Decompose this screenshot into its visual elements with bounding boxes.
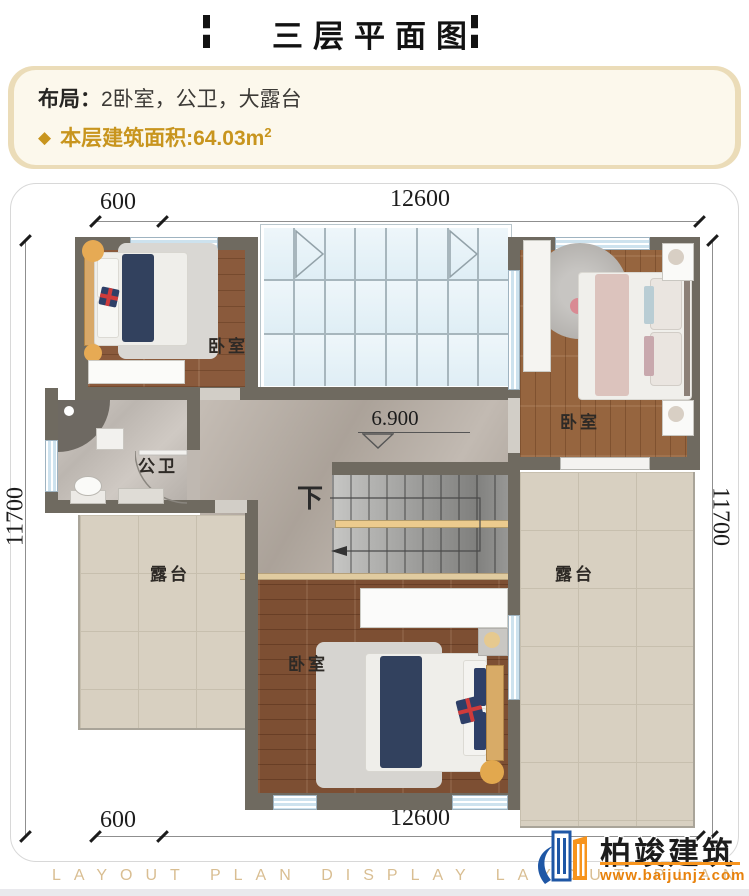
level-triangle: [362, 433, 394, 450]
wardrobe: [523, 240, 551, 372]
bed-blanket: [380, 656, 422, 768]
door-opening: [195, 388, 240, 400]
terrace-left-floor: [78, 515, 245, 730]
wardrobe: [360, 588, 508, 628]
level-label: 6.900: [355, 406, 435, 431]
bath-vanity: [118, 488, 164, 504]
lamp: [484, 632, 500, 648]
stairs-down-label: 下: [292, 478, 328, 515]
area-label: 本层建筑面积:: [60, 127, 193, 150]
title-dash-right: [471, 15, 478, 48]
lamp: [668, 406, 684, 422]
bedroom-topleft-label: 卧室: [198, 332, 258, 357]
window: [508, 615, 520, 700]
round-stool: [480, 760, 504, 784]
skylight-opening-arrows: [263, 228, 509, 282]
bed-blanket: [122, 254, 154, 342]
window: [452, 795, 508, 810]
bed-headboard: [486, 665, 504, 761]
lamp: [668, 249, 684, 265]
bathroom-sink: [96, 428, 124, 450]
pillow: [650, 332, 682, 386]
terrace-opening: [215, 500, 247, 513]
terrace-right-label: 露台: [545, 560, 605, 585]
page-title: 三层平面图: [0, 11, 749, 56]
sliding-door: [560, 457, 650, 470]
dim-left: 11700: [3, 467, 30, 567]
bedroom-topright-label: 卧室: [550, 408, 610, 433]
round-stool: [82, 240, 104, 262]
area-sup: 2: [264, 125, 271, 140]
area-line: ◆本层建筑面积:64.03m2: [38, 122, 272, 152]
bathroom-window: [45, 440, 58, 492]
bathroom-label: 公卫: [128, 452, 188, 477]
wall: [75, 387, 512, 400]
shower-head: [64, 406, 74, 416]
window: [273, 795, 317, 810]
door-opening: [508, 398, 520, 453]
stairs-direction-path: [330, 490, 485, 558]
page: 三层平面图 布局：2卧室，公卫，大露台 ◆本层建筑面积:64.03m2 600 …: [0, 0, 749, 896]
stair-base-beam: [240, 573, 512, 580]
toilet-bowl: [74, 476, 102, 496]
dim-top-left: 600: [88, 189, 148, 216]
pillow: [650, 278, 682, 330]
dim-line-top: [95, 221, 700, 222]
bed-blanket-pink: [595, 274, 629, 396]
info-card: 布局：2卧室，公卫，大露台 ◆本层建筑面积:64.03m2: [8, 66, 741, 169]
dim-bottom-left: 600: [88, 807, 148, 834]
layout-label: 布局：: [38, 88, 101, 111]
wall: [245, 513, 258, 810]
brand-rule: [600, 862, 740, 865]
terrace-right-floor: [520, 472, 695, 828]
wall: [332, 462, 512, 475]
dresser: [88, 360, 185, 384]
union-jack-pillow: [98, 286, 119, 307]
dim-top-center: 12600: [320, 186, 520, 213]
bathroom-door-opening: [187, 450, 200, 505]
bedroom-bottom-label: 卧室: [278, 650, 338, 675]
layout-value: 2卧室，公卫，大露台: [101, 88, 302, 111]
diamond-icon: ◆: [38, 128, 51, 147]
layout-line: 布局：2卧室，公卫，大露台: [38, 83, 302, 113]
brand-url: www.baijunjz.com: [600, 867, 745, 884]
accent-pillow: [644, 336, 654, 376]
bed-headboard: [684, 276, 690, 396]
accent-pillow: [644, 286, 654, 324]
terrace-left-label: 露台: [140, 560, 200, 585]
bottom-strip: [0, 889, 749, 896]
wall: [245, 237, 258, 400]
dim-right: 11700: [707, 467, 734, 567]
area-value: 64.03m: [193, 127, 264, 150]
brand-logo-icon: [535, 826, 597, 890]
window: [508, 270, 520, 390]
